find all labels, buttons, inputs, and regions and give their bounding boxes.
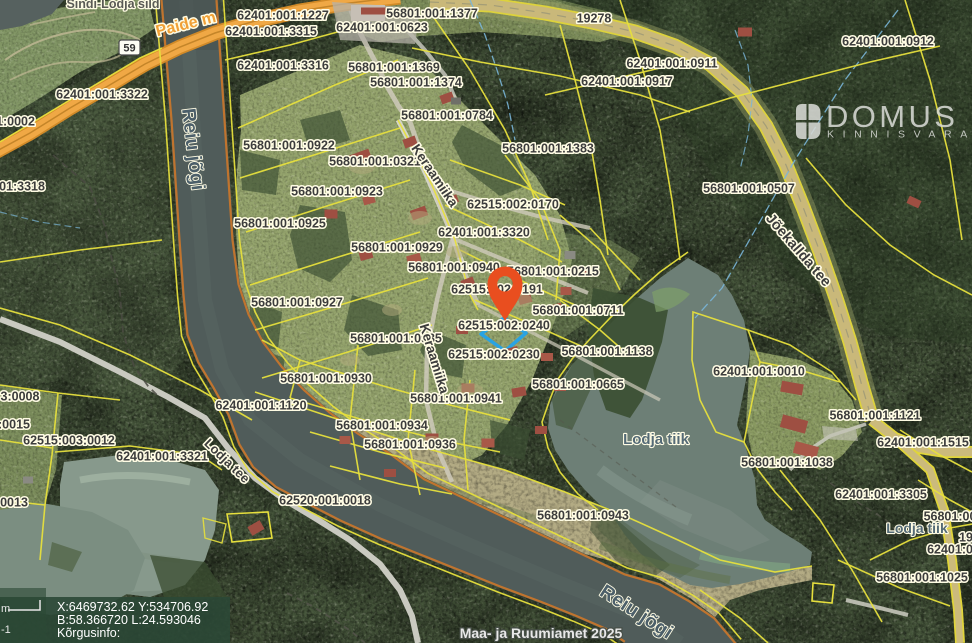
svg-text:56801:001:1121: 56801:001:1121: [829, 409, 920, 423]
svg-text:62401:001:3316: 62401:001:3316: [237, 59, 329, 73]
svg-text:62401:001:3305: 62401:001:3305: [835, 488, 927, 502]
svg-text:Maa- ja Ruumiamet 2025: Maa- ja Ruumiamet 2025: [460, 625, 623, 641]
svg-text:56801:001:0925: 56801:001:0925: [234, 217, 326, 231]
svg-text:56801:001:1383: 56801:001:1383: [502, 142, 594, 156]
svg-text:62401:001:1515: 62401:001:1515: [877, 436, 969, 450]
svg-text:62515:002:0240: 62515:002:0240: [458, 319, 550, 333]
svg-text:62401:001:3322: 62401:001:3322: [56, 88, 148, 102]
svg-text:Sindi-Lodja sild: Sindi-Lodja sild: [66, 0, 159, 11]
svg-text:62401:001:3321: 62401:001:3321: [116, 450, 208, 464]
svg-text:56801:001:0922: 56801:001:0922: [243, 139, 335, 153]
svg-text::0015: :0015: [0, 418, 30, 432]
svg-text:62401:001:0917: 62401:001:0917: [581, 75, 673, 89]
svg-text:62515:002:0170: 62515:002:0170: [467, 198, 559, 212]
svg-text:62401:001:3315: 62401:001:3315: [225, 25, 317, 39]
svg-text:56801:001:0934: 56801:001:0934: [336, 419, 428, 433]
svg-text:62401:001:0911: 62401:001:0911: [626, 57, 717, 71]
svg-text:3:0008: 3:0008: [1, 390, 40, 404]
svg-text:19278: 19278: [577, 12, 612, 26]
svg-text:56801:001:0929: 56801:001:0929: [351, 241, 443, 255]
svg-text:56801:001:1025: 56801:001:1025: [876, 571, 968, 585]
svg-text:62401:001:0010: 62401:001:0010: [713, 365, 805, 379]
svg-text:56801:001:0711: 56801:001:0711: [532, 304, 623, 318]
svg-text:56801:001:0940: 56801:001:0940: [408, 261, 500, 275]
svg-text:62401:0: 62401:0: [927, 543, 972, 557]
svg-text:01:0002: 01:0002: [0, 115, 35, 129]
svg-text:-1: -1: [1, 624, 11, 636]
svg-text:56801:001:0941: 56801:001:0941: [410, 392, 502, 406]
svg-text:56801:001:1374: 56801:001:1374: [370, 76, 462, 90]
svg-text:62401:001:1120: 62401:001:1120: [215, 399, 306, 413]
svg-text:56801:001:0321: 56801:001:0321: [329, 155, 421, 169]
svg-text:56801:001:1377: 56801:001:1377: [386, 7, 478, 21]
svg-text:62515:002:0230: 62515:002:0230: [448, 348, 540, 362]
svg-text:62401:001:1227: 62401:001:1227: [237, 9, 329, 23]
svg-text:56801:001:0930: 56801:001:0930: [280, 372, 372, 386]
svg-text:56801:001:0665: 56801:001:0665: [532, 378, 624, 392]
svg-text:m: m: [1, 603, 10, 615]
svg-text:56801:001:0215: 56801:001:0215: [507, 265, 599, 279]
svg-text:Kõrgusinfo:: Kõrgusinfo:: [57, 626, 120, 640]
svg-text:Lodja tiik: Lodja tiik: [886, 520, 948, 536]
svg-text:62520:001:0018: 62520:001:0018: [279, 494, 371, 508]
svg-text:56801:001:1138: 56801:001:1138: [561, 345, 652, 359]
svg-text:56801:001:1369: 56801:001:1369: [348, 61, 440, 75]
svg-text:62515:003:0012: 62515:003:0012: [23, 434, 115, 448]
svg-text:56801:001:0507: 56801:001:0507: [703, 182, 795, 196]
svg-text:62401:001:0912: 62401:001:0912: [842, 35, 934, 49]
svg-text:01:3318: 01:3318: [0, 180, 45, 194]
svg-text:62401:001:0623: 62401:001:0623: [336, 21, 428, 35]
svg-text:0013: 0013: [0, 496, 28, 510]
svg-text:62401:001:3320: 62401:001:3320: [438, 226, 530, 240]
svg-text:56801:001:0784: 56801:001:0784: [401, 109, 493, 123]
svg-text:56801:001:0923: 56801:001:0923: [291, 185, 383, 199]
svg-text:56801:001:1038: 56801:001:1038: [741, 456, 833, 470]
svg-text:X:6469732.62 Y:534706.92: X:6469732.62 Y:534706.92: [57, 600, 208, 614]
svg-text:59: 59: [123, 43, 135, 55]
svg-text:KINNISVARA: KINNISVARA: [827, 129, 972, 141]
svg-text:56801:001:0936: 56801:001:0936: [364, 438, 456, 452]
svg-text:56801:001:0943: 56801:001:0943: [537, 509, 629, 523]
svg-text:B:58.366720 L:24.593046: B:58.366720 L:24.593046: [57, 613, 201, 627]
svg-text:56801:001:0927: 56801:001:0927: [251, 296, 343, 310]
svg-text:Lodja tiik: Lodja tiik: [623, 431, 689, 448]
